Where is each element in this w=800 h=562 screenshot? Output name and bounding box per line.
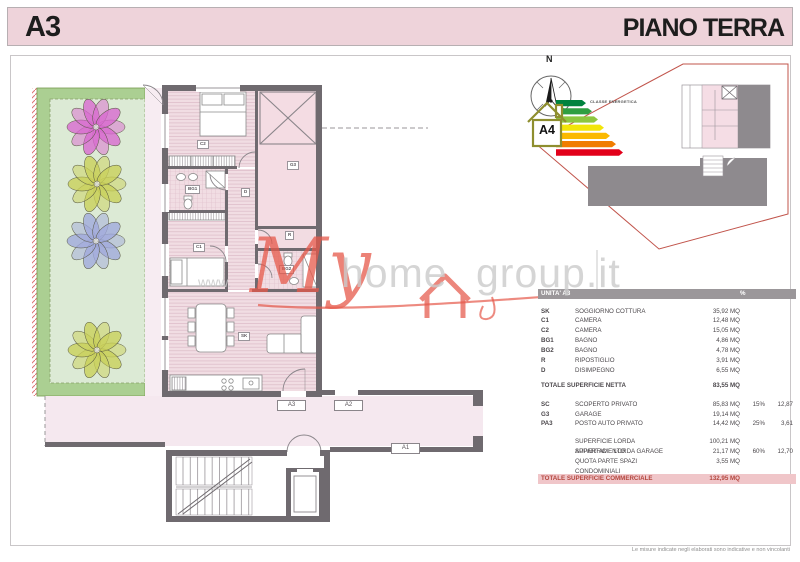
garden — [32, 88, 145, 396]
room-label-g3: G3 — [287, 161, 299, 170]
table-row: SUPERFICIE LORDA GARAGE21,17 MQ60%12,70 — [538, 447, 796, 457]
room-label-bg1: BG1 — [185, 185, 200, 194]
room-label-bg2: BG2 — [279, 265, 294, 274]
table-row: PA3POSTO AUTO PRIVATO14,42 MQ25%3,61 — [538, 419, 796, 429]
energy-title: CLASSE ENERGETICA — [590, 99, 637, 104]
door-label-a1: A1 — [391, 443, 420, 454]
table-row: SKSOGGIORNO COTTURA35,92 MQ — [538, 307, 796, 317]
net-total-row: TOTALE SUPERFICIE NETTA83,55 MQ — [538, 381, 796, 391]
disclaimer-text: Le misure indicate negli elaborati sono … — [632, 547, 790, 553]
room-label-r: R — [285, 231, 294, 240]
table-row: BG1BAGNO4,86 MQ — [538, 336, 796, 346]
corridor — [45, 396, 483, 446]
table-row: G3GARAGE19,14 MQ — [538, 410, 796, 420]
private-patio — [145, 88, 163, 396]
table-row: RRIPOSTIGLIO3,91 MQ — [538, 356, 796, 366]
table-row: QUOTA PARTE SPAZI CONDOMINIALI3,55 MQ — [538, 457, 796, 467]
table-header: UNITA' A3 % — [538, 289, 796, 299]
room-label-c1: C1 — [193, 243, 205, 252]
commercial-total-row: TOTALE SUPERFICIE COMMERCIALE132,95 MQ — [538, 474, 796, 485]
table-row: C2CAMERA15,05 MQ — [538, 326, 796, 336]
table-row: SCSCOPERTO PRIVATO85,83 MQ15%12,87 — [538, 400, 796, 410]
room-label-c2: C2 — [197, 140, 209, 149]
table-row: BG2BAGNO4,78 MQ — [538, 346, 796, 356]
table-row: SUPERFICIE LORDA APPARTAMENTO100,21 MQ — [538, 437, 796, 447]
door-label-a3: A3 — [277, 400, 306, 411]
energy-class-text: A4 — [535, 123, 559, 137]
door-label-a2: A2 — [334, 400, 363, 411]
stairwell — [166, 450, 330, 522]
room-label-d: D — [241, 188, 250, 197]
floor-title: PIANO TERRA — [623, 14, 784, 43]
table-row: DDISIMPEGNO6,55 MQ — [538, 366, 796, 376]
unit-code: A3 — [25, 11, 60, 44]
area-table: UNITA' A3 % SKSOGGIORNO COTTURA35,92 MQ … — [538, 289, 796, 484]
house-outline-icon — [421, 276, 469, 318]
page-header: A3 PIANO TERRA — [7, 7, 793, 46]
room-label-sk: SK — [238, 332, 250, 341]
table-pct-header: % — [740, 289, 765, 299]
table-row: C1CAMERA12,48 MQ — [538, 316, 796, 326]
north-label: N — [546, 54, 553, 64]
site-key-plan — [535, 64, 788, 249]
table-title: UNITA' A3 — [541, 289, 684, 299]
